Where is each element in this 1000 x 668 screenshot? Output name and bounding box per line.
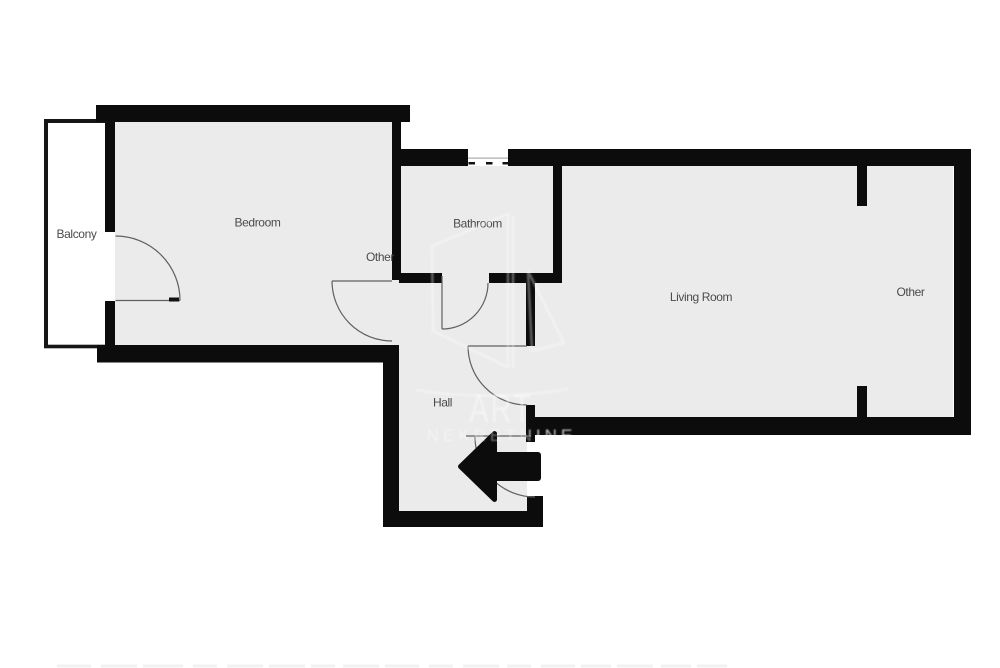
svg-text:Hall: Hall	[433, 396, 452, 410]
svg-text:Other: Other	[896, 285, 924, 299]
svg-text:ART: ART	[469, 386, 533, 431]
svg-text:Bedroom: Bedroom	[235, 216, 281, 230]
svg-text:Living Room: Living Room	[670, 290, 733, 304]
svg-text:Other: Other	[366, 250, 394, 264]
svg-text:Balcony: Balcony	[57, 227, 97, 241]
